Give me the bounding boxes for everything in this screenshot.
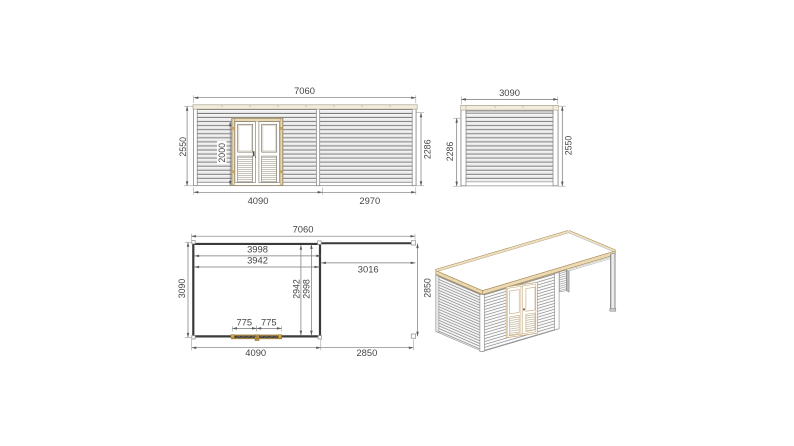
svg-text:2000: 2000: [217, 143, 227, 163]
svg-text:2550: 2550: [178, 137, 188, 157]
svg-text:3090: 3090: [177, 279, 187, 299]
svg-text:2942: 2942: [292, 279, 302, 299]
svg-text:7060: 7060: [293, 224, 314, 235]
svg-text:3016: 3016: [358, 263, 379, 274]
svg-text:3998: 3998: [247, 244, 268, 255]
svg-text:7060: 7060: [294, 85, 315, 96]
svg-text:2850: 2850: [356, 347, 377, 358]
svg-text:775: 775: [261, 316, 277, 327]
svg-text:2850: 2850: [422, 278, 432, 298]
svg-text:3090: 3090: [499, 87, 520, 98]
svg-text:2550: 2550: [563, 136, 573, 156]
svg-text:2998: 2998: [302, 279, 312, 299]
svg-text:775: 775: [236, 316, 252, 327]
svg-text:4090: 4090: [248, 195, 269, 206]
svg-text:2286: 2286: [423, 139, 433, 159]
svg-text:3942: 3942: [247, 255, 268, 266]
svg-text:4090: 4090: [245, 347, 266, 358]
svg-text:2970: 2970: [359, 195, 380, 206]
svg-text:2286: 2286: [445, 142, 455, 162]
